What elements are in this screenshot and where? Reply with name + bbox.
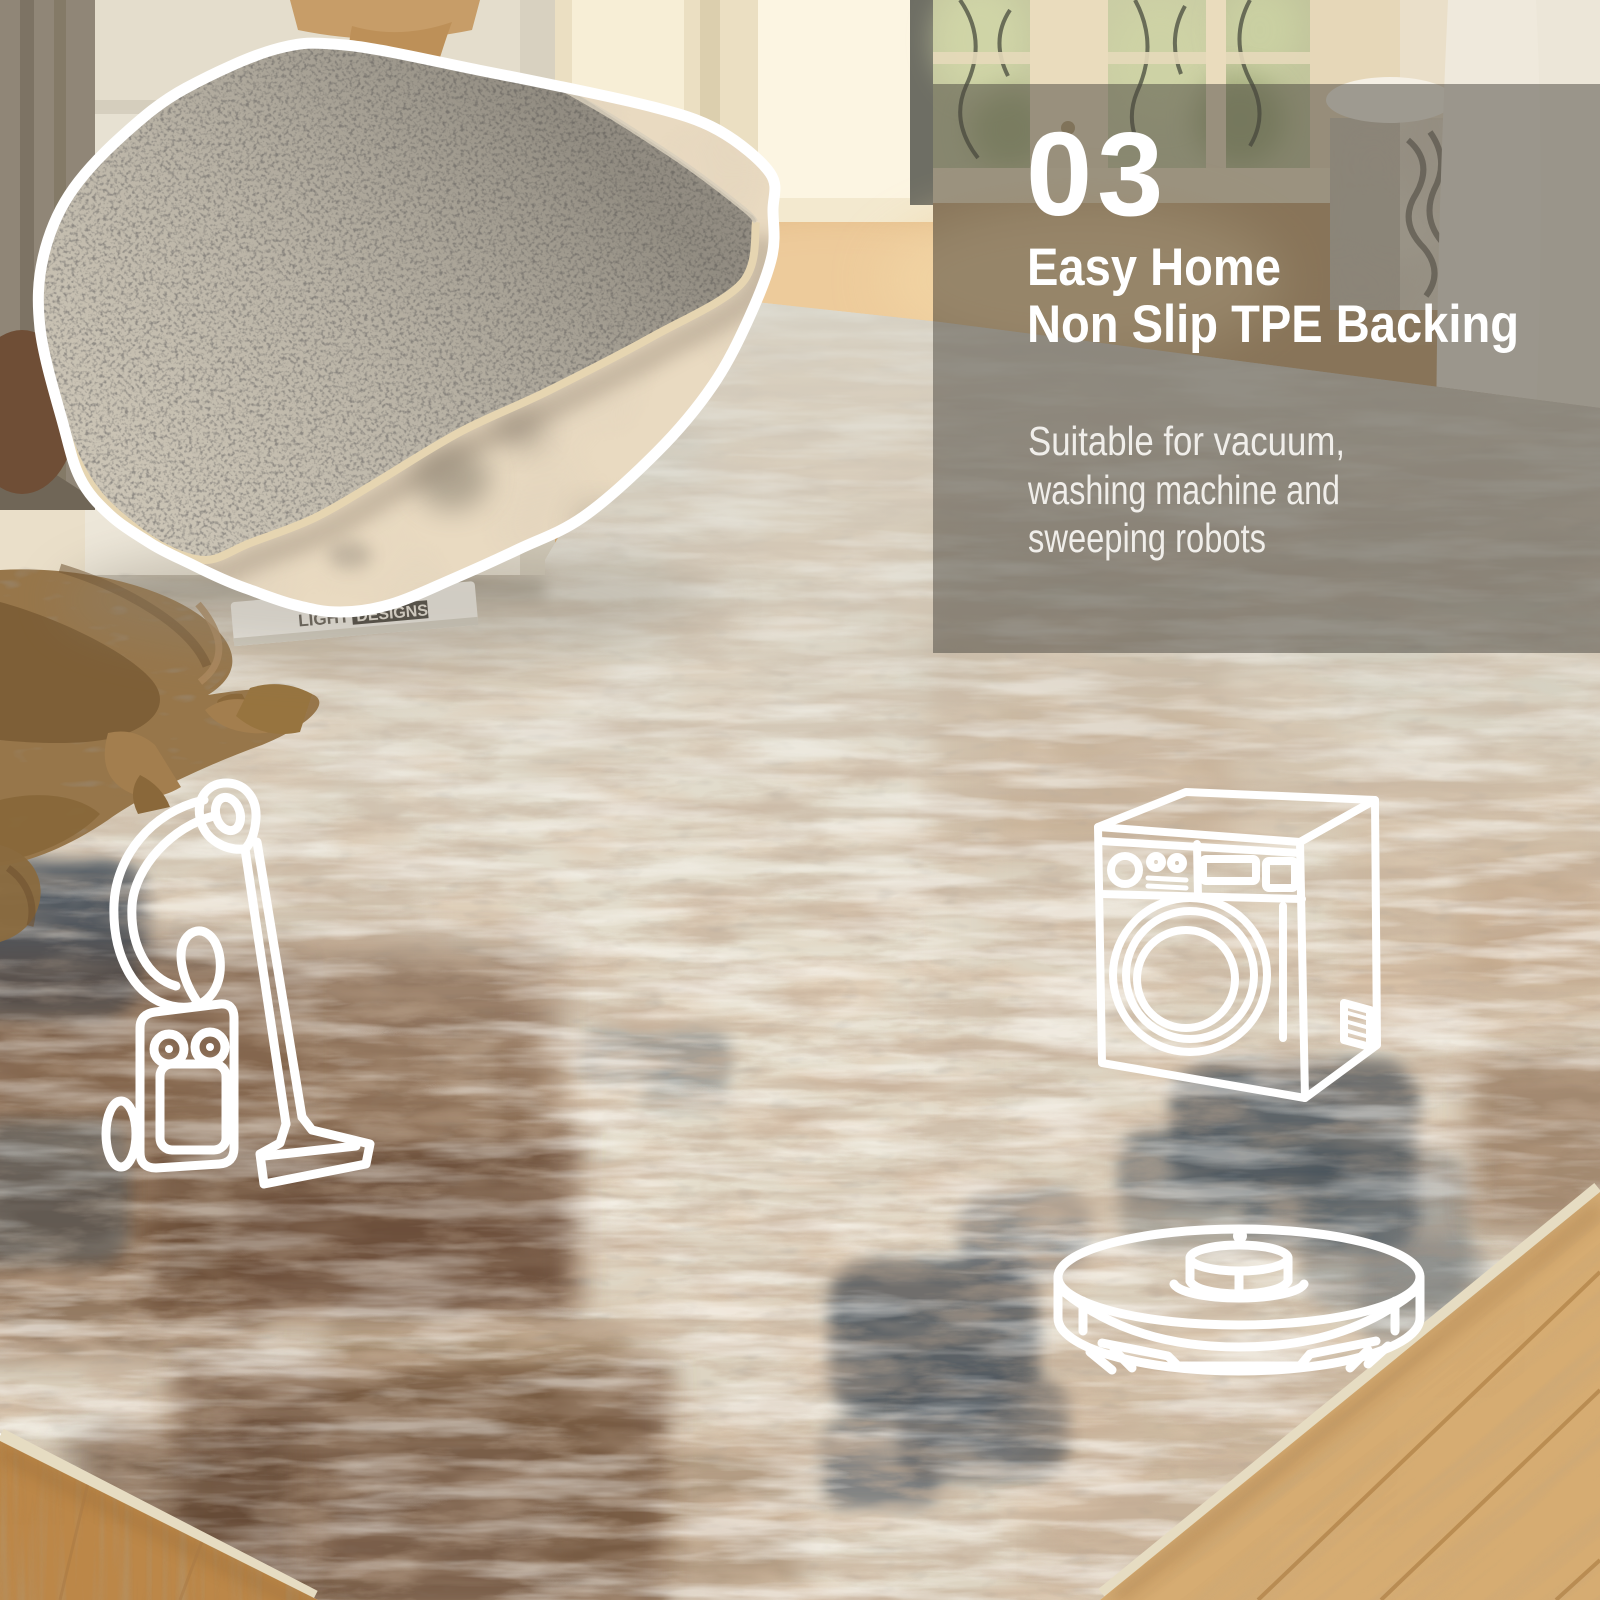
- svg-text:Suitable for vacuum,: Suitable for vacuum,: [1028, 418, 1345, 464]
- svg-text:sweeping robots: sweeping robots: [1028, 515, 1266, 561]
- svg-text:03: 03: [1026, 108, 1168, 241]
- svg-text:washing machine and: washing machine and: [1027, 467, 1340, 513]
- svg-text:Easy Home: Easy Home: [1027, 238, 1281, 297]
- svg-text:Non Slip TPE Backing: Non Slip TPE Backing: [1027, 295, 1519, 354]
